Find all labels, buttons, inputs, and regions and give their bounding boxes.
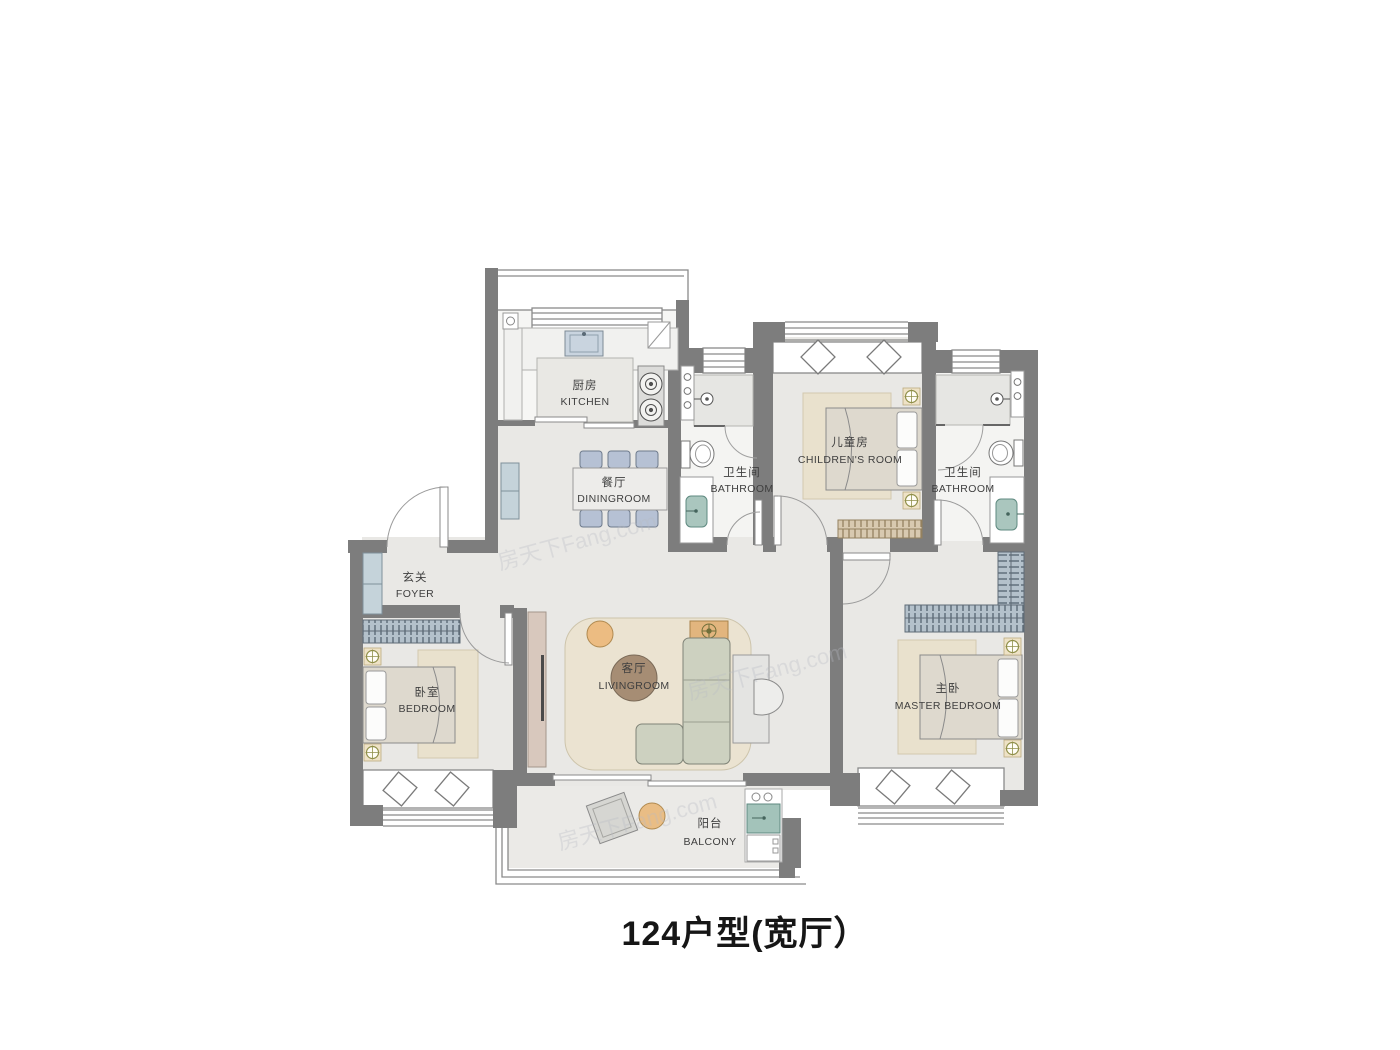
shower-head-dot [705, 397, 709, 401]
bathroom1-label-zh: 卫生间 [723, 465, 761, 479]
tv-icon [541, 655, 544, 721]
stool [587, 621, 613, 647]
lamp-icon [1004, 638, 1021, 655]
floorplan-page: 房天下Fang.com 房天下Fang.com 房天下Fang.com 厨房 K… [0, 0, 1400, 1050]
children-door-leaf [774, 496, 781, 545]
coffee-table [611, 655, 657, 701]
kitchen-label-zh: 厨房 [573, 379, 598, 392]
washer-dot [762, 816, 766, 820]
kitchen-faucet [582, 332, 586, 336]
master-label-zh: 主卧 [936, 682, 961, 695]
floorplan-title: 124户型(宽厅） [621, 914, 868, 953]
toilet-tank-2 [1014, 440, 1023, 466]
foyer [363, 553, 382, 614]
lamp-icon [903, 492, 920, 509]
bathroom1-label-en: BATHROOM [710, 483, 773, 495]
master-bay-window [858, 768, 1004, 824]
foyer-label-en: FOYER [396, 588, 434, 600]
balcony-label-zh: 阳台 [698, 816, 723, 830]
shower-head-dot-2 [995, 397, 999, 401]
toilet-tank [681, 441, 690, 468]
lamp-icon [903, 388, 920, 405]
lamp-icon [364, 744, 381, 761]
master-label-en: MASTER BEDROOM [895, 700, 1002, 712]
lamp-icon [1004, 740, 1021, 757]
bathroom2-label-zh: 卫生间 [944, 465, 982, 479]
bedroom-label-zh: 卧室 [415, 685, 440, 699]
kitchen-counter-left [504, 328, 522, 420]
bathroom1-door-leaf [755, 500, 762, 545]
bedroom-pillow-2 [366, 707, 386, 740]
floorplan-svg: 房天下Fang.com 房天下Fang.com 房天下Fang.com 厨房 K… [0, 0, 1400, 1050]
gas-meter-icon [503, 313, 518, 329]
bedroom-door-leaf [505, 613, 512, 665]
lamp-icon [364, 648, 381, 665]
living-label-zh: 客厅 [622, 661, 647, 675]
master-door-leaf [843, 553, 890, 560]
balcony-label-en: BALCONY [684, 836, 737, 848]
bathroom2-label-en: BATHROOM [931, 483, 994, 495]
bedroom-label-en: BEDROOM [398, 703, 455, 715]
kitchen-window-band [532, 308, 662, 330]
dining-label-en: DININGROOM [577, 493, 650, 505]
towel-shelf-knobs [684, 374, 691, 409]
plant-icon [702, 624, 716, 638]
foyer-label-zh: 玄关 [403, 570, 428, 584]
dining-label-zh: 餐厅 [602, 475, 627, 489]
children-label-zh: 儿童房 [831, 435, 869, 449]
children-label-en: CHILDREN'S ROOM [798, 454, 902, 466]
master-pillow-1 [998, 659, 1018, 697]
vanity-faucet-dot [694, 509, 698, 513]
living-label-en: LIVINGROOM [598, 680, 669, 692]
bedroom-pillow-1 [366, 671, 386, 704]
bathroom2-window [952, 350, 1000, 373]
sofa-chaise [636, 724, 683, 764]
children-pillow-1 [897, 412, 917, 448]
entry-door-leaf [440, 487, 448, 547]
bathroom2-door-leaf [934, 500, 941, 545]
children-bay-window [773, 322, 922, 374]
kitchen-label-en: KITCHEN [561, 396, 610, 408]
vanity-faucet-dot-2 [1006, 512, 1010, 516]
bathroom1-window [703, 348, 745, 373]
